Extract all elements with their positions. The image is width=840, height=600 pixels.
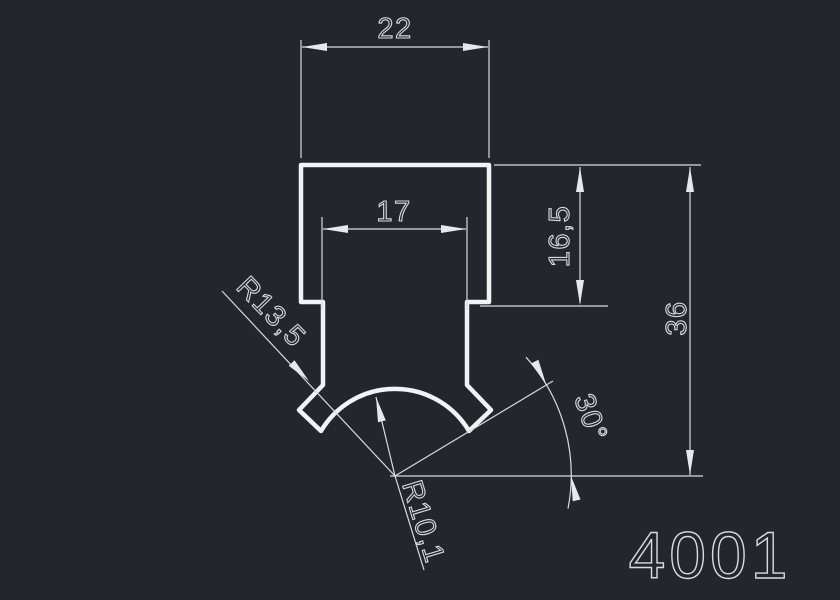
arrowhead-icon bbox=[686, 450, 694, 475]
angle-arc bbox=[526, 357, 571, 508]
arrowhead-icon bbox=[686, 167, 694, 192]
dim-label-width-inner: 17 bbox=[376, 196, 411, 228]
dim-width-inner: 17 bbox=[322, 196, 467, 310]
arrowhead-icon bbox=[302, 43, 327, 51]
arrowhead-icon bbox=[571, 476, 581, 501]
cad-drawing-canvas: 22 17 16,5 36 bbox=[0, 0, 840, 600]
arrowhead-icon bbox=[441, 225, 466, 233]
arrowhead-icon bbox=[576, 167, 584, 192]
arrowhead-icon bbox=[463, 43, 488, 51]
dim-label-angle: 30° bbox=[567, 390, 613, 446]
dim-label-height-total: 36 bbox=[661, 300, 693, 335]
dim-width-outer: 22 bbox=[301, 13, 489, 158]
dim-label-width-outer: 22 bbox=[377, 13, 412, 45]
arrowhead-icon bbox=[576, 280, 584, 305]
dim-depth-inner: 16,5 bbox=[480, 167, 608, 306]
leader-line bbox=[222, 291, 395, 476]
arrowhead-icon bbox=[531, 360, 546, 384]
cad-drawing: 22 17 16,5 36 bbox=[0, 0, 840, 600]
dim-label-radius-inner: R10,1 bbox=[395, 477, 450, 568]
arrowhead-icon bbox=[289, 360, 309, 381]
arrowhead-icon bbox=[376, 397, 386, 422]
dim-radius-inner: R10,1 bbox=[376, 397, 451, 570]
dim-label-depth-inner: 16,5 bbox=[544, 205, 576, 267]
arrowhead-icon bbox=[323, 225, 348, 233]
part-number-label: 4001 bbox=[629, 518, 792, 592]
